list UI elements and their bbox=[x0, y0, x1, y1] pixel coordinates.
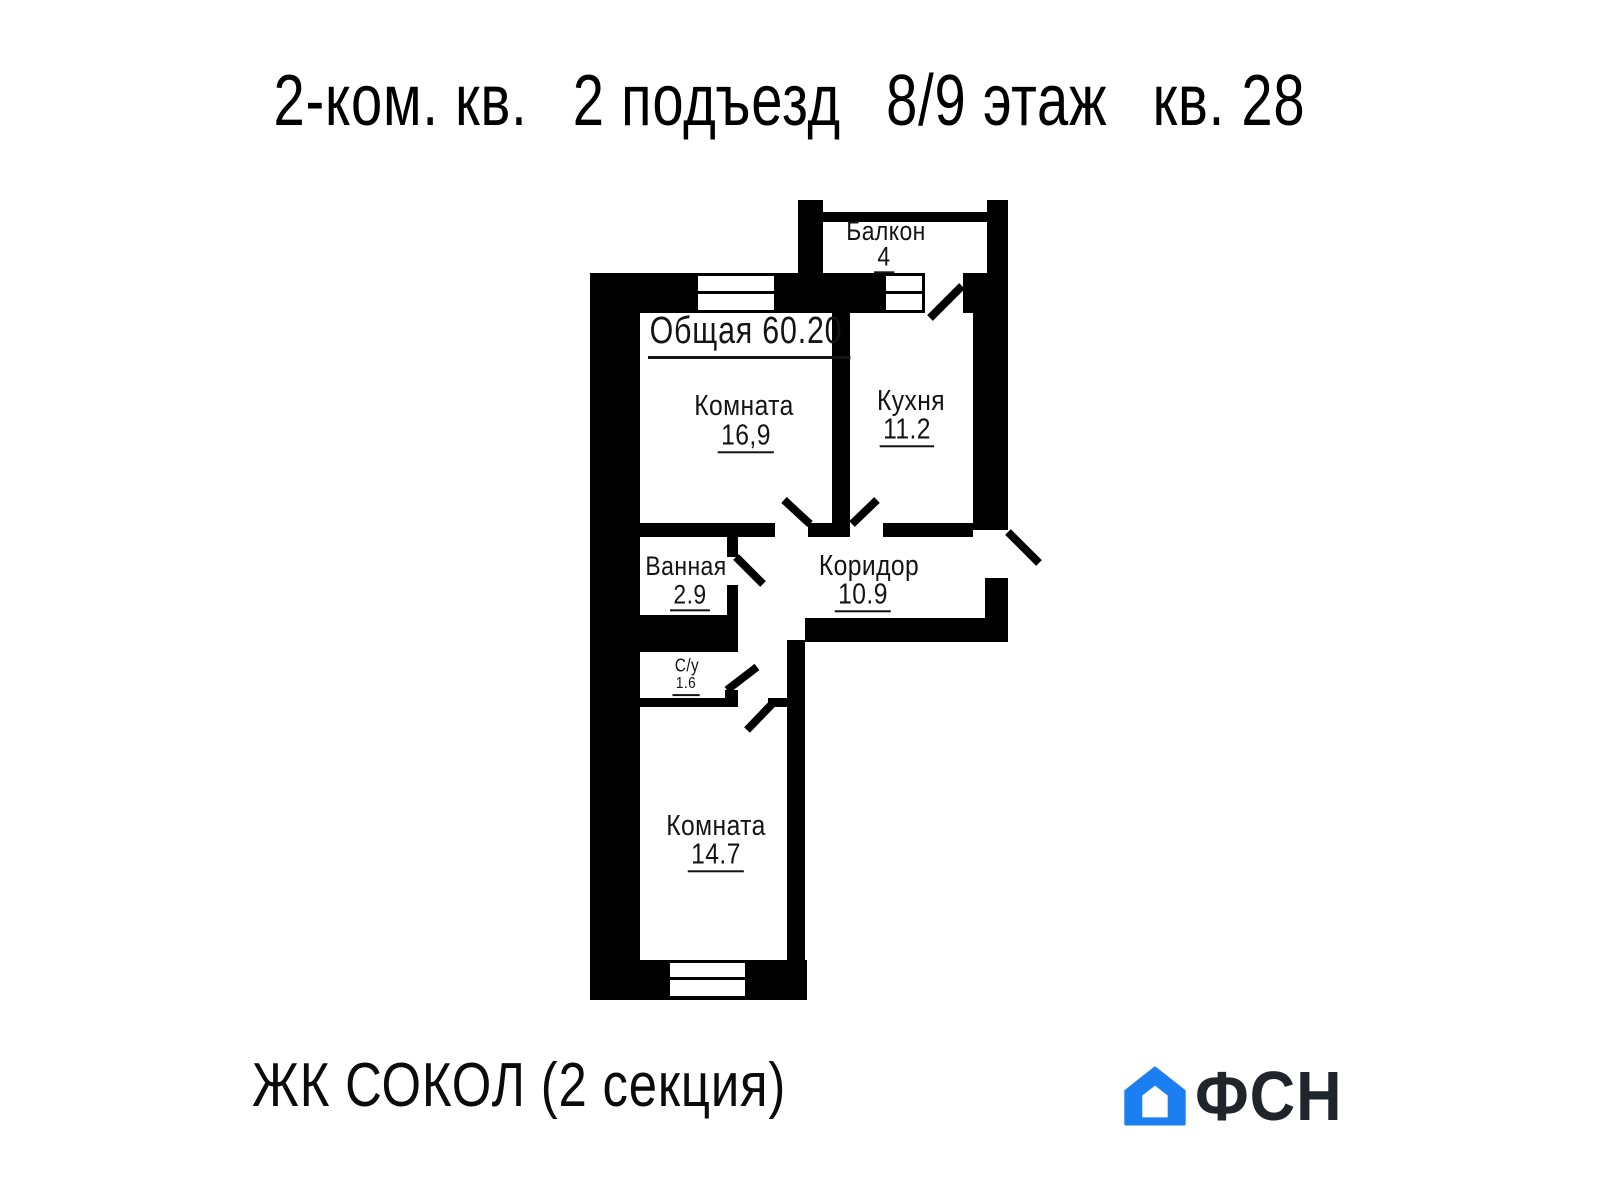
kitchen-label: Кухня bbox=[871, 386, 951, 416]
balcony-area: 4 bbox=[872, 242, 896, 273]
corridor-area: 10.9 bbox=[830, 579, 896, 612]
wc-label: С/у bbox=[673, 657, 702, 676]
corridor-label: Коридор bbox=[810, 551, 928, 581]
kitchen-area: 11.2 bbox=[875, 414, 939, 447]
developer-logo: ФСН bbox=[1124, 1066, 1359, 1126]
floorplan-page: 2-ком. кв. 2 подъезд 8/9 этаж кв. 28 bbox=[0, 0, 1600, 1200]
total-area-label: Общая 60.20 bbox=[648, 310, 850, 359]
wc-area: 1.6 bbox=[670, 676, 702, 696]
bathroom-area: 2.9 bbox=[666, 580, 713, 611]
room1-label: Комната bbox=[685, 391, 802, 421]
room2-label: Комната bbox=[657, 811, 774, 841]
room1-area: 16,9 bbox=[713, 420, 779, 453]
house-icon bbox=[1124, 1066, 1186, 1126]
logo-text: ФСН bbox=[1195, 1066, 1342, 1126]
room2-area: 14.7 bbox=[683, 839, 749, 872]
bathroom-label: Ванная bbox=[638, 552, 733, 580]
project-name: ЖК СОКОЛ (2 секция) bbox=[252, 1050, 786, 1121]
floorplan-drawing bbox=[0, 0, 1600, 1200]
